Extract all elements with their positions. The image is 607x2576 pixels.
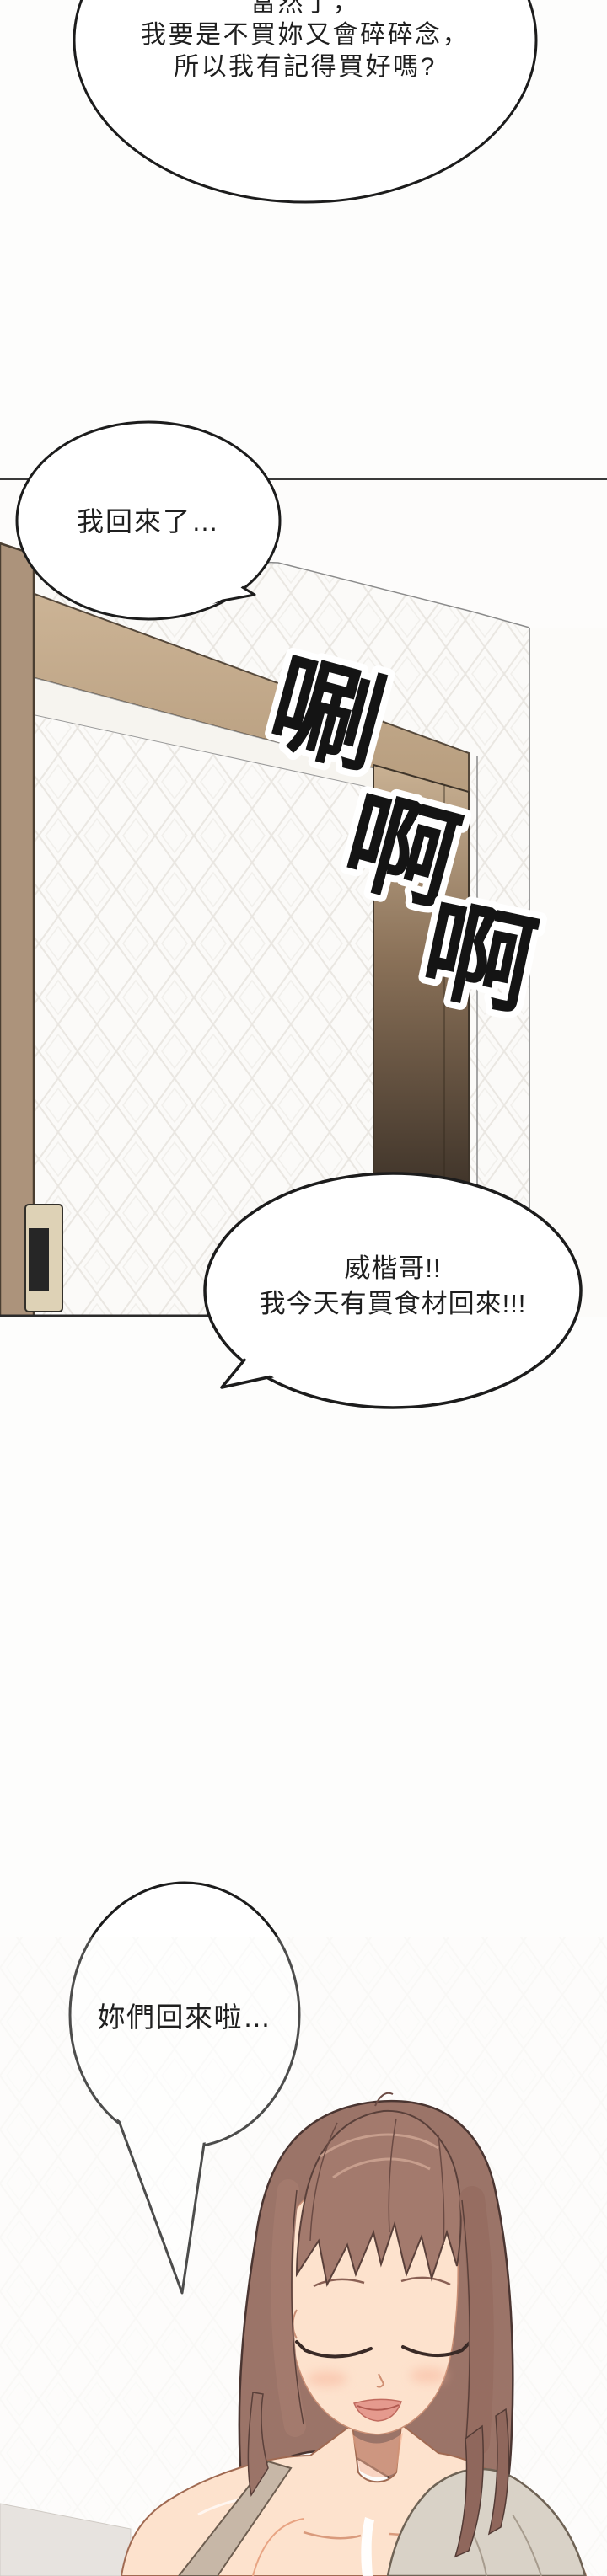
speech-bubble-2-text: 我回來了… [17, 504, 280, 539]
blush-right [410, 2368, 447, 2383]
speech-bubble-1-text: 當然了， 我要是不買妳又會碎碎念， 所以我有記得買好嗎? [74, 0, 536, 83]
bubble-1-line-3: 所以我有記得買好嗎? [174, 51, 437, 83]
comic-page: 唰 啊 啊 [0, 0, 607, 2576]
bubble-1-line-1: 當然了， [250, 0, 360, 19]
bubble-3-line-2: 我今天有買食材回來!!! [260, 1286, 527, 1322]
door-lock-slot [29, 1228, 49, 1291]
bubble-2-line-1: 我回來了… [77, 504, 220, 539]
bubble-3-line-1: 威楷哥!! [344, 1251, 441, 1286]
speech-bubble-3-text: 威楷哥!! 我今天有買食材回來!!! [205, 1251, 581, 1322]
blush-left [307, 2371, 347, 2386]
bubble-4-line-1: 妳們回來啦… [98, 2000, 272, 2035]
bubble-1-line-2: 我要是不買妳又會碎碎念， [141, 19, 470, 51]
open-door-edge [0, 543, 34, 1316]
hair-side-lock-right [472, 2199, 481, 2443]
speech-bubble-4-text: 妳們回來啦… [71, 2000, 298, 2035]
